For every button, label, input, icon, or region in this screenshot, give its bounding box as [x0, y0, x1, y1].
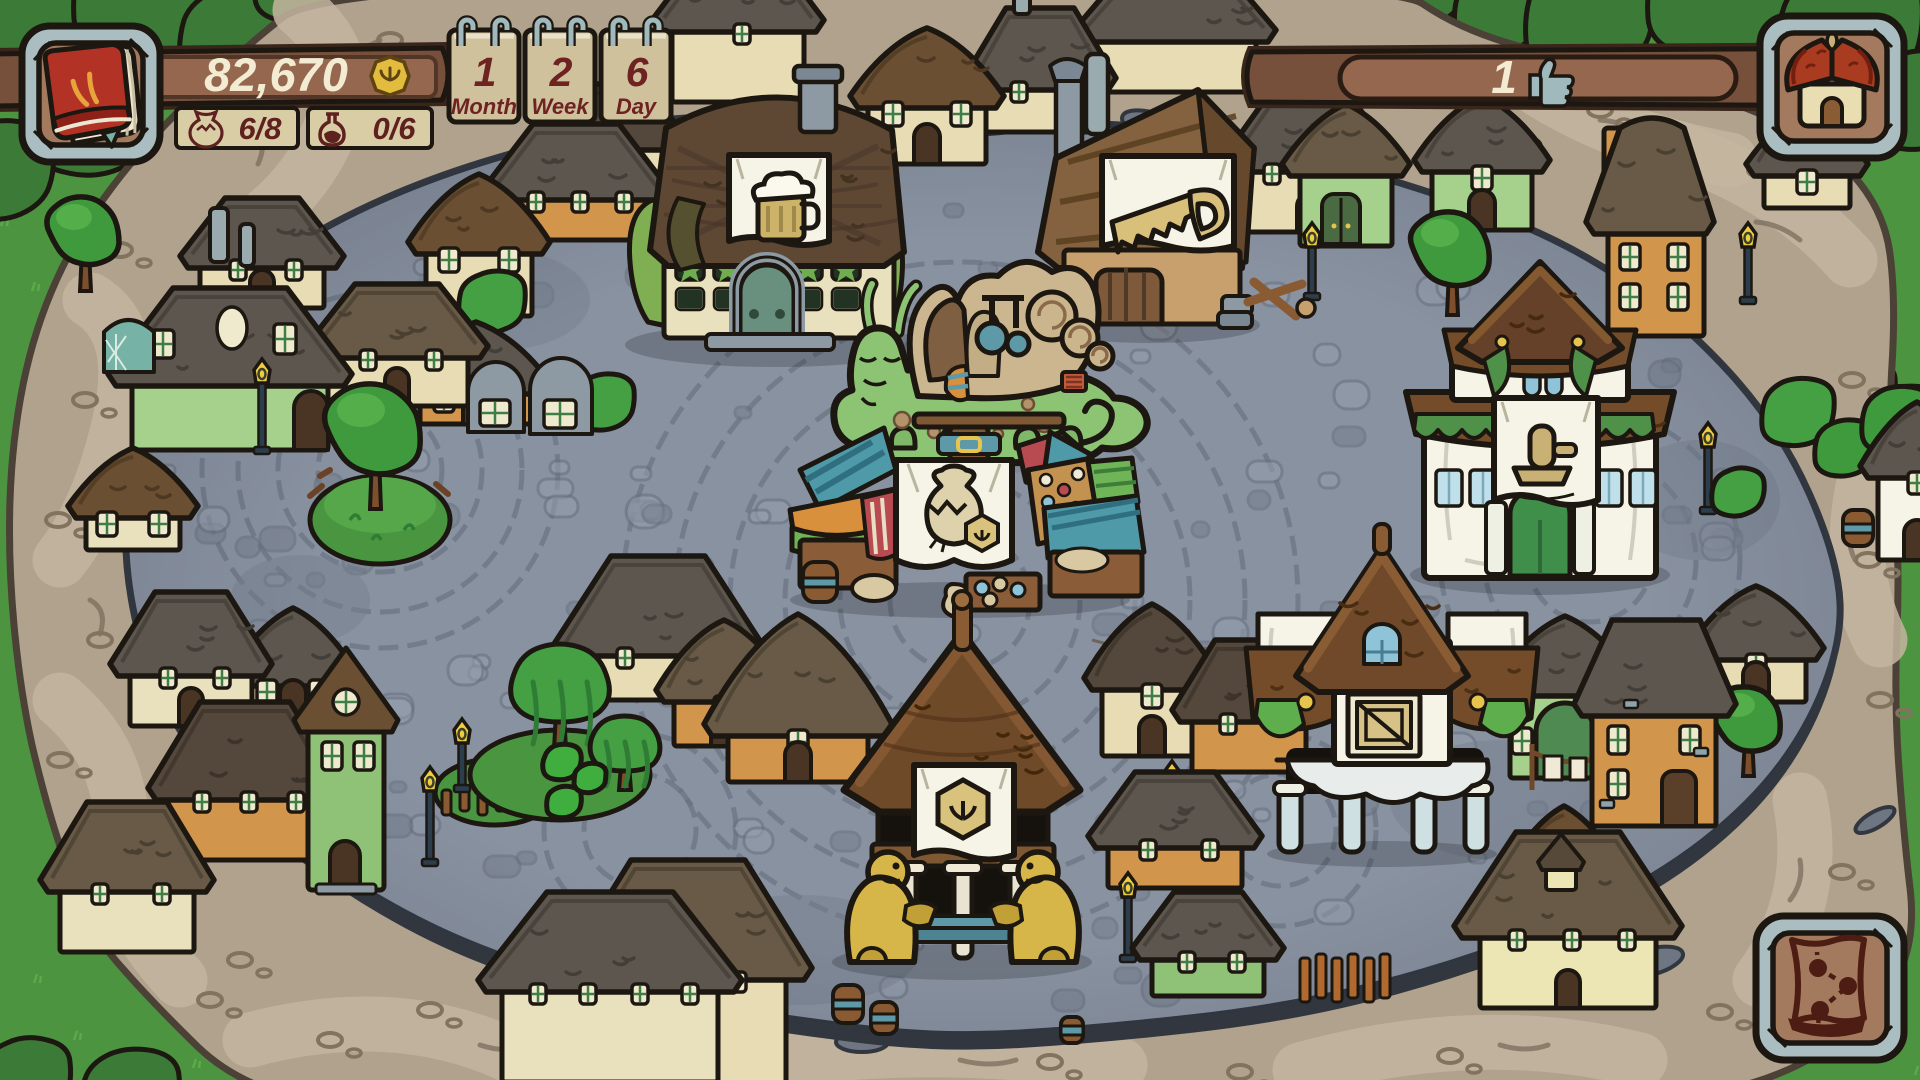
svg-text:6/8: 6/8: [238, 111, 282, 146]
svg-text:Day: Day: [616, 94, 658, 119]
svg-text:2: 2: [549, 49, 573, 95]
svg-text:6: 6: [626, 49, 650, 95]
svg-text:82,670: 82,670: [204, 48, 348, 101]
svg-text:0/6: 0/6: [372, 111, 416, 146]
svg-text:1: 1: [1491, 51, 1517, 103]
svg-text:Week: Week: [531, 94, 590, 119]
svg-text:Month: Month: [451, 94, 517, 119]
svg-text:1: 1: [474, 49, 497, 95]
